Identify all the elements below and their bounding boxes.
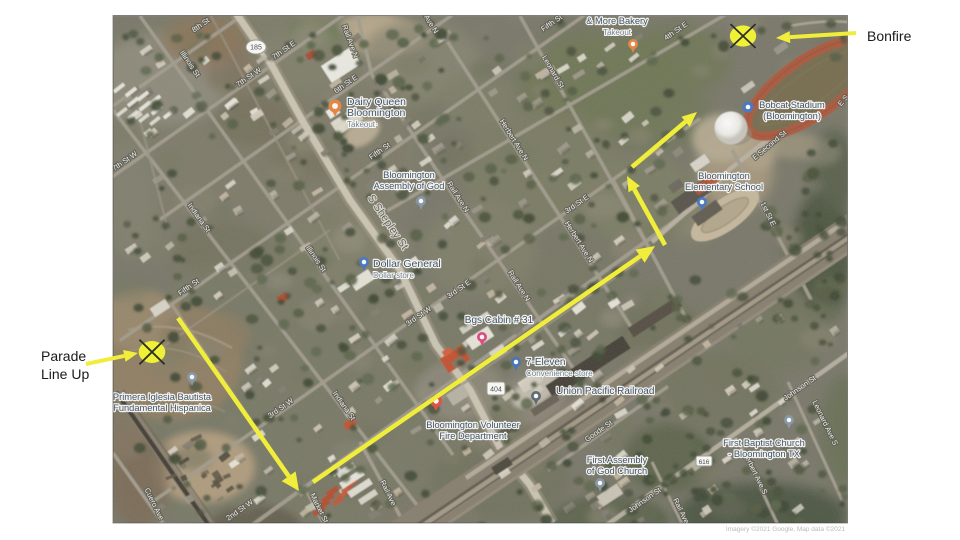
svg-text:Parade: Parade bbox=[41, 348, 86, 364]
svg-text:Imagery ©2021 Google, Map data: Imagery ©2021 Google, Map data ©2021 bbox=[726, 525, 845, 533]
svg-text:Line Up: Line Up bbox=[41, 366, 89, 382]
svg-text:Bonfire: Bonfire bbox=[867, 28, 912, 44]
